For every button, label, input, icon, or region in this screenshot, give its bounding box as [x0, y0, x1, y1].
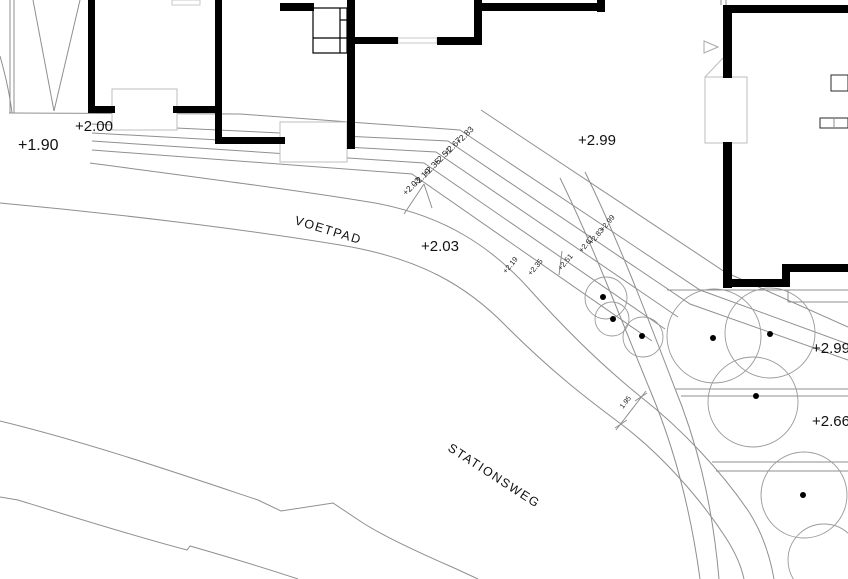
- entrance-stoop: [705, 77, 747, 143]
- step-elevation-label: +2.51: [556, 252, 575, 272]
- spot-elevation-label: +2.99: [578, 132, 616, 149]
- spot-elevation-label: +2.00: [75, 118, 113, 135]
- wall-segment: [88, 106, 115, 113]
- tree-trunk-dot: [610, 316, 616, 322]
- wall-segment: [347, 0, 355, 149]
- slope-line: [54, 0, 80, 111]
- tree-trunk-dot: [710, 335, 716, 341]
- wall-segment: [723, 279, 789, 287]
- dimension-label: 1.95: [619, 395, 633, 410]
- entrance-stoop: [280, 122, 347, 162]
- spot-elevation-label: +1.90: [18, 137, 59, 154]
- spot-elevation-label: +2.99: [812, 340, 848, 357]
- tree-trunk-dot: [767, 331, 773, 337]
- wall-segment: [597, 0, 605, 12]
- wall-segment: [215, 137, 285, 144]
- wall-segment: [173, 106, 222, 113]
- wall-segment: [88, 0, 95, 113]
- street-curb-lower: [0, 497, 298, 579]
- wall-segment: [215, 0, 222, 144]
- street-name-stationsweg: STATIONSWEG: [445, 441, 542, 511]
- wall-segment: [723, 142, 732, 288]
- walkway-edge-lower: [0, 203, 744, 579]
- entrance-stoops: [112, 0, 747, 162]
- tree-trunk-dot: [800, 492, 806, 498]
- wall-segment: [437, 37, 475, 45]
- wall-segment: [474, 0, 482, 45]
- slope-line: [33, 0, 54, 111]
- building-walls: [88, 0, 848, 288]
- step-line: [92, 141, 665, 329]
- tree-trunk-dot: [639, 333, 645, 339]
- path-edge-steep: [585, 172, 719, 579]
- tree-icon: [788, 524, 848, 579]
- wall-segment: [788, 264, 848, 272]
- street-name-voetpad: VOETPAD: [293, 213, 363, 247]
- spot-elevation-label: +2.66: [812, 413, 848, 430]
- wall-segment: [353, 37, 398, 44]
- furniture-rect: [831, 75, 848, 91]
- tree-trunk-dot: [753, 393, 759, 399]
- step-elevation-label: +2.99: [598, 213, 617, 233]
- wall-segment: [728, 5, 848, 13]
- stair-outline: [313, 8, 347, 53]
- street-curb-upper: [0, 421, 478, 579]
- tree-icon: [708, 357, 798, 447]
- step-line: [9, 113, 848, 344]
- canopy-line: [705, 58, 723, 77]
- door-triangle-icon: [704, 41, 718, 53]
- site-plan-canvas: +1.90 +2.00 +2.03 +2.99 +2.99 +2.66 VOET…: [0, 0, 848, 579]
- wall-segment: [723, 5, 732, 78]
- wall-segment: [280, 3, 314, 11]
- window-opening: [172, 0, 200, 5]
- step-line: [92, 124, 848, 360]
- spot-elevation-label: +2.03: [421, 238, 459, 255]
- walkway-edge-upper: [90, 163, 774, 579]
- step-elevation-label: +2.35: [526, 257, 545, 277]
- tree-trunk-dot: [600, 294, 606, 300]
- window-opening: [398, 38, 437, 43]
- stair-icon: [313, 8, 347, 53]
- step-elevation-label: +2.19: [501, 255, 520, 275]
- wall-segment: [481, 3, 597, 11]
- step-line: [92, 150, 652, 341]
- entrance-stoop: [112, 89, 177, 130]
- path-edge-steep: [560, 178, 700, 579]
